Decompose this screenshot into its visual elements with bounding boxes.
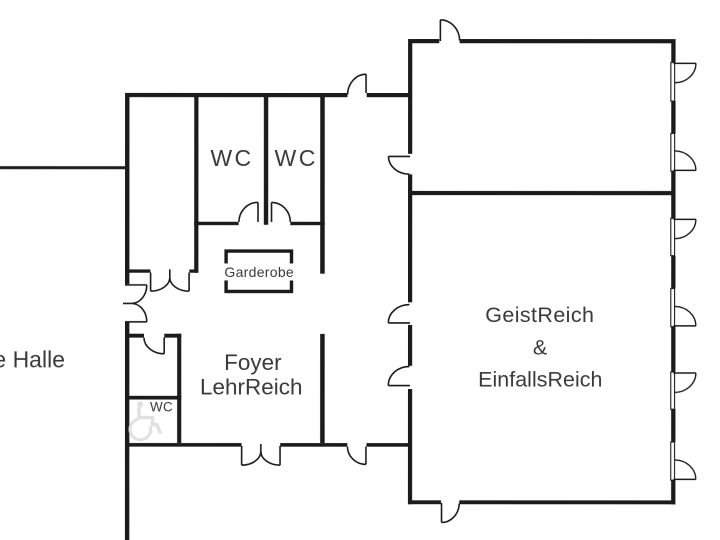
svg-text:WC: WC bbox=[275, 145, 318, 171]
svg-text:GeistReich: GeistReich bbox=[485, 303, 594, 327]
svg-text:&: & bbox=[533, 335, 548, 359]
svg-text:WC: WC bbox=[210, 145, 253, 171]
svg-text:EinfallsReich: EinfallsReich bbox=[478, 368, 602, 392]
svg-text:WC: WC bbox=[150, 400, 173, 415]
svg-text:Foyer: Foyer bbox=[224, 350, 282, 375]
svg-text:Garderobe: Garderobe bbox=[224, 264, 294, 280]
svg-text:e Halle: e Halle bbox=[0, 346, 65, 372]
svg-text:LehrReich: LehrReich bbox=[200, 374, 303, 399]
